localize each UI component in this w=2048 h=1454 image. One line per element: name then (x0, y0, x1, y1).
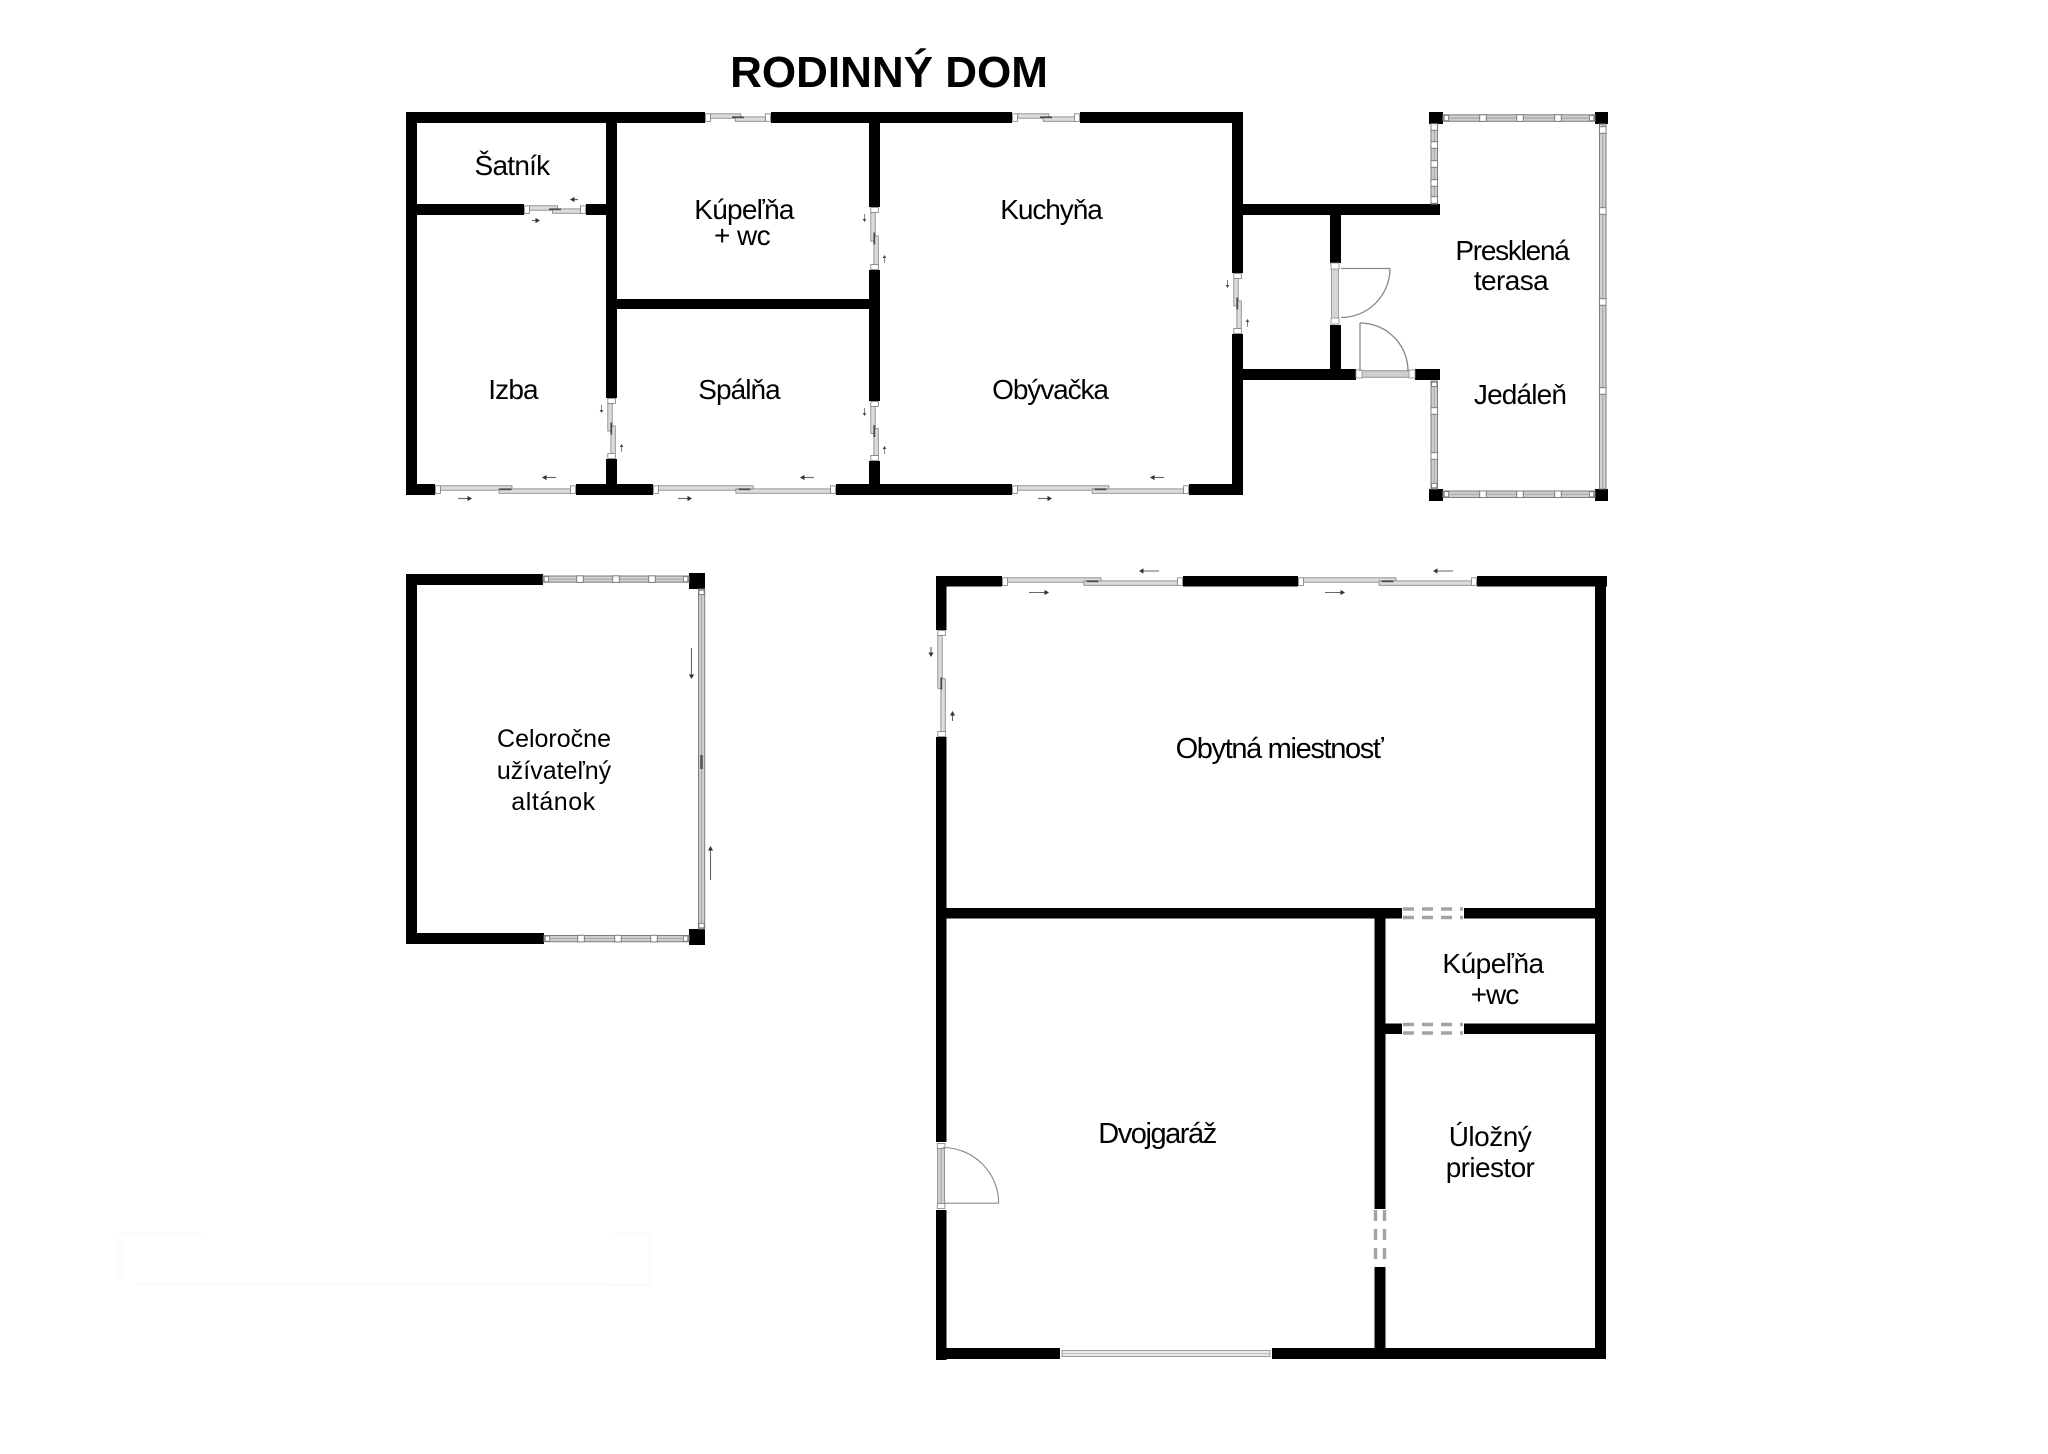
svg-text:Izba: Izba (488, 374, 539, 405)
svg-text:+ wc: + wc (714, 220, 771, 251)
svg-text:Úložný: Úložný (1449, 1121, 1532, 1152)
svg-text:Obytná miestnosť: Obytná miestnosť (1176, 733, 1385, 765)
svg-text:Dvojgaráž: Dvojgaráž (1098, 1118, 1216, 1150)
svg-text:užívateľný: užívateľný (497, 757, 612, 785)
svg-text:Obývačka: Obývačka (992, 374, 1109, 405)
svg-text:RODINNÝ DOM: RODINNÝ DOM (730, 47, 1048, 97)
svg-text:Kúpeľňa: Kúpeľňa (1442, 948, 1544, 979)
svg-text:priestor: priestor (1446, 1152, 1535, 1183)
svg-text:terasa: terasa (1474, 265, 1549, 296)
svg-text:Celoročne: Celoročne (497, 725, 611, 753)
svg-text:Kuchyňa: Kuchyňa (1000, 194, 1103, 225)
svg-text:Presklená: Presklená (1455, 235, 1570, 266)
svg-text:Jedáleň: Jedáleň (1474, 379, 1566, 410)
svg-text:Šatník: Šatník (475, 150, 552, 181)
svg-text:altánok: altánok (511, 788, 595, 816)
svg-text:+wc: +wc (1471, 979, 1520, 1010)
svg-text:Spálňa: Spálňa (698, 374, 781, 405)
